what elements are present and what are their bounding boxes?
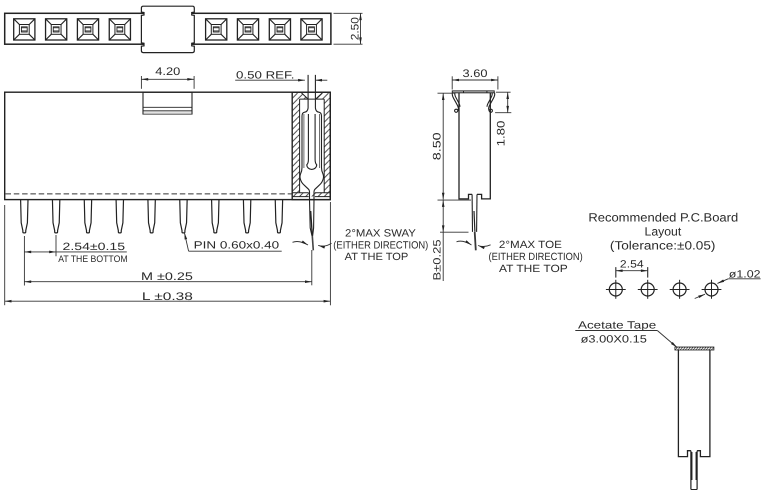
svg-text:Acetate Tape: Acetate Tape xyxy=(578,319,656,331)
svg-text:3.60: 3.60 xyxy=(463,68,488,80)
svg-text:Recommended P.C.Board: Recommended P.C.Board xyxy=(588,210,738,224)
svg-text:8.50: 8.50 xyxy=(431,132,443,160)
svg-text:B±0.25: B±0.25 xyxy=(432,239,444,280)
svg-text:2.54±0.15: 2.54±0.15 xyxy=(63,241,126,253)
svg-text:(Tolerance:±0.05): (Tolerance:±0.05) xyxy=(610,238,716,252)
svg-text:AT THE TOP: AT THE TOP xyxy=(499,263,568,275)
svg-text:2°MAX SWAY: 2°MAX SWAY xyxy=(345,228,416,240)
svg-text:Layout: Layout xyxy=(645,224,682,238)
svg-text:L ±0.38: L ±0.38 xyxy=(142,291,193,303)
svg-text:2.50: 2.50 xyxy=(349,17,361,40)
svg-text:(EITHER DIRECTION): (EITHER DIRECTION) xyxy=(489,251,583,263)
svg-text:1.80: 1.80 xyxy=(495,121,507,147)
svg-text:ø1.02: ø1.02 xyxy=(729,268,761,280)
svg-text:ø3.00X0.15: ø3.00X0.15 xyxy=(581,334,647,346)
svg-text:2°MAX TOE: 2°MAX TOE xyxy=(499,239,562,251)
svg-text:4.20: 4.20 xyxy=(155,66,180,78)
svg-text:PIN 0.60x0.40: PIN 0.60x0.40 xyxy=(194,240,280,252)
svg-text:2.54: 2.54 xyxy=(620,259,644,271)
svg-text:M ±0.25: M ±0.25 xyxy=(141,271,193,283)
svg-text:(EITHER DIRECTION): (EITHER DIRECTION) xyxy=(333,239,428,251)
svg-text:AT THE BOTTOM: AT THE BOTTOM xyxy=(58,254,127,265)
svg-text:AT THE TOP: AT THE TOP xyxy=(345,251,409,263)
svg-text:0.50 REF.: 0.50 REF. xyxy=(236,70,294,82)
